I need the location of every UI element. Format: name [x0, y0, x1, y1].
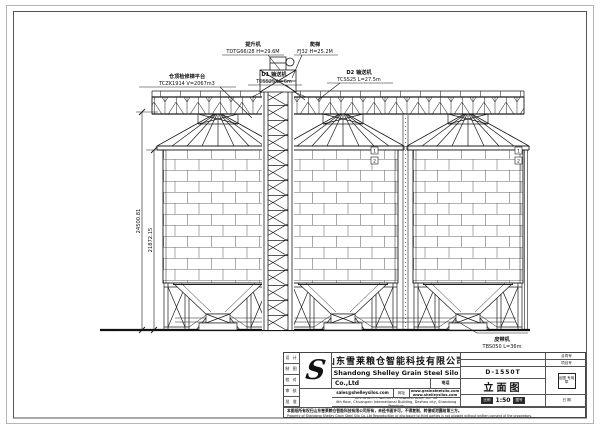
company-email: sales@shelleysilos.com — [332, 389, 394, 398]
disclaimer: 本图纸所有权归山东雪莱粮仓智能科技有限公司所有，未经书面许可，不得复制、转借或泄… — [284, 407, 587, 418]
svg-text:皮带机: 皮带机 — [493, 335, 510, 343]
info-row-2 — [461, 360, 546, 367]
company-address: 山东省德州市经济技术开发区创新创业大厦4层 4th floor, Chuangx… — [332, 398, 461, 407]
svg-text:D2 输送机: D2 输送机 — [346, 68, 372, 76]
scale-label: 比例 — [481, 397, 492, 404]
svg-text:仓顶检修梯平台: 仓顶检修梯平台 — [168, 72, 205, 80]
company-suffix: Co.,Ltd — [332, 379, 431, 389]
phone-label: 电话 — [431, 379, 461, 389]
svg-text:TDTG66/28 H=29.6M: TDTG66/28 H=29.6M — [225, 49, 279, 55]
svg-text:TBS050 L=36m: TBS050 L=36m — [482, 344, 522, 350]
svg-text:FJ32 H=25.2M: FJ32 H=25.2M — [297, 49, 333, 55]
info-row-1 — [461, 353, 546, 360]
marker-3: 1 — [517, 149, 520, 155]
silo-2 — [282, 104, 404, 330]
stamp-cell: 出图 专用章 — [546, 367, 587, 395]
archive-row-3: 日 期 — [546, 395, 587, 407]
sign-row-audit: 审 核 — [284, 386, 300, 397]
scale-value: 1:50 — [496, 397, 511, 404]
company-name-en: Shandong Shelley Grain Steel Silo — [332, 368, 461, 379]
dim-total-height: 24500.81 — [136, 209, 142, 234]
sign-row-design: 设 计 — [284, 353, 300, 364]
silo-1 — [157, 104, 279, 330]
marker-1: 1 — [373, 149, 376, 155]
sign-row-draw: 制 图 — [284, 364, 300, 375]
drawing-stamp: 出图 专用章 — [558, 373, 576, 389]
project-number: D-1550T — [461, 367, 546, 379]
archive-row-2: 项目号 — [546, 360, 587, 367]
drawing-sheet: 24500.81 21872.15 1 2 1 2 仓顶检修梯平台 TCZK19… — [0, 0, 600, 429]
marker-4: 2 — [517, 159, 520, 165]
svg-text:提升机: 提升机 — [245, 40, 261, 48]
archive-row-1: 合同号 — [546, 353, 587, 360]
svg-text:爬梯: 爬梯 — [309, 40, 321, 48]
svg-text:D1 输送机: D1 输送机 — [261, 70, 287, 78]
company-name-cn: 山东雪莱粮仓智能科技有限公司 — [332, 353, 461, 368]
company-websites: www.grainsteelsilo.comwww.shelleysilos.c… — [410, 389, 461, 398]
svg-text:TCZK1914 V=2067m3: TCZK1914 V=2067m3 — [158, 81, 215, 87]
top-gallery — [152, 91, 524, 114]
marker-2: 2 — [373, 159, 376, 165]
title-block: 设 计 制 图 校 对 审 核 批 准 S 山东雪莱粮仓智能科技有限公司 Sha… — [283, 352, 586, 418]
annotation-ladder: 爬梯 FJ32 H=25.2M — [292, 40, 338, 78]
sign-row-approve: 批 准 — [284, 397, 300, 407]
sheet-label: 图号 — [513, 397, 524, 404]
company-logo: S — [300, 353, 332, 389]
web-label: 网址 — [394, 389, 410, 398]
dim-silo-height: 21872.15 — [148, 228, 154, 253]
silo-3 — [407, 104, 529, 330]
logo-s-icon: S — [304, 357, 327, 384]
scale-row: 比例 1:50 图号 — [461, 395, 546, 407]
view-name: 立面图 — [461, 379, 546, 395]
svg-text:TCSS25 L=27.5m: TCSS25 L=27.5m — [336, 77, 381, 83]
sign-row-check: 校 对 — [284, 375, 300, 386]
svg-text:TCSS25 L=6m: TCSS25 L=6m — [255, 79, 292, 85]
